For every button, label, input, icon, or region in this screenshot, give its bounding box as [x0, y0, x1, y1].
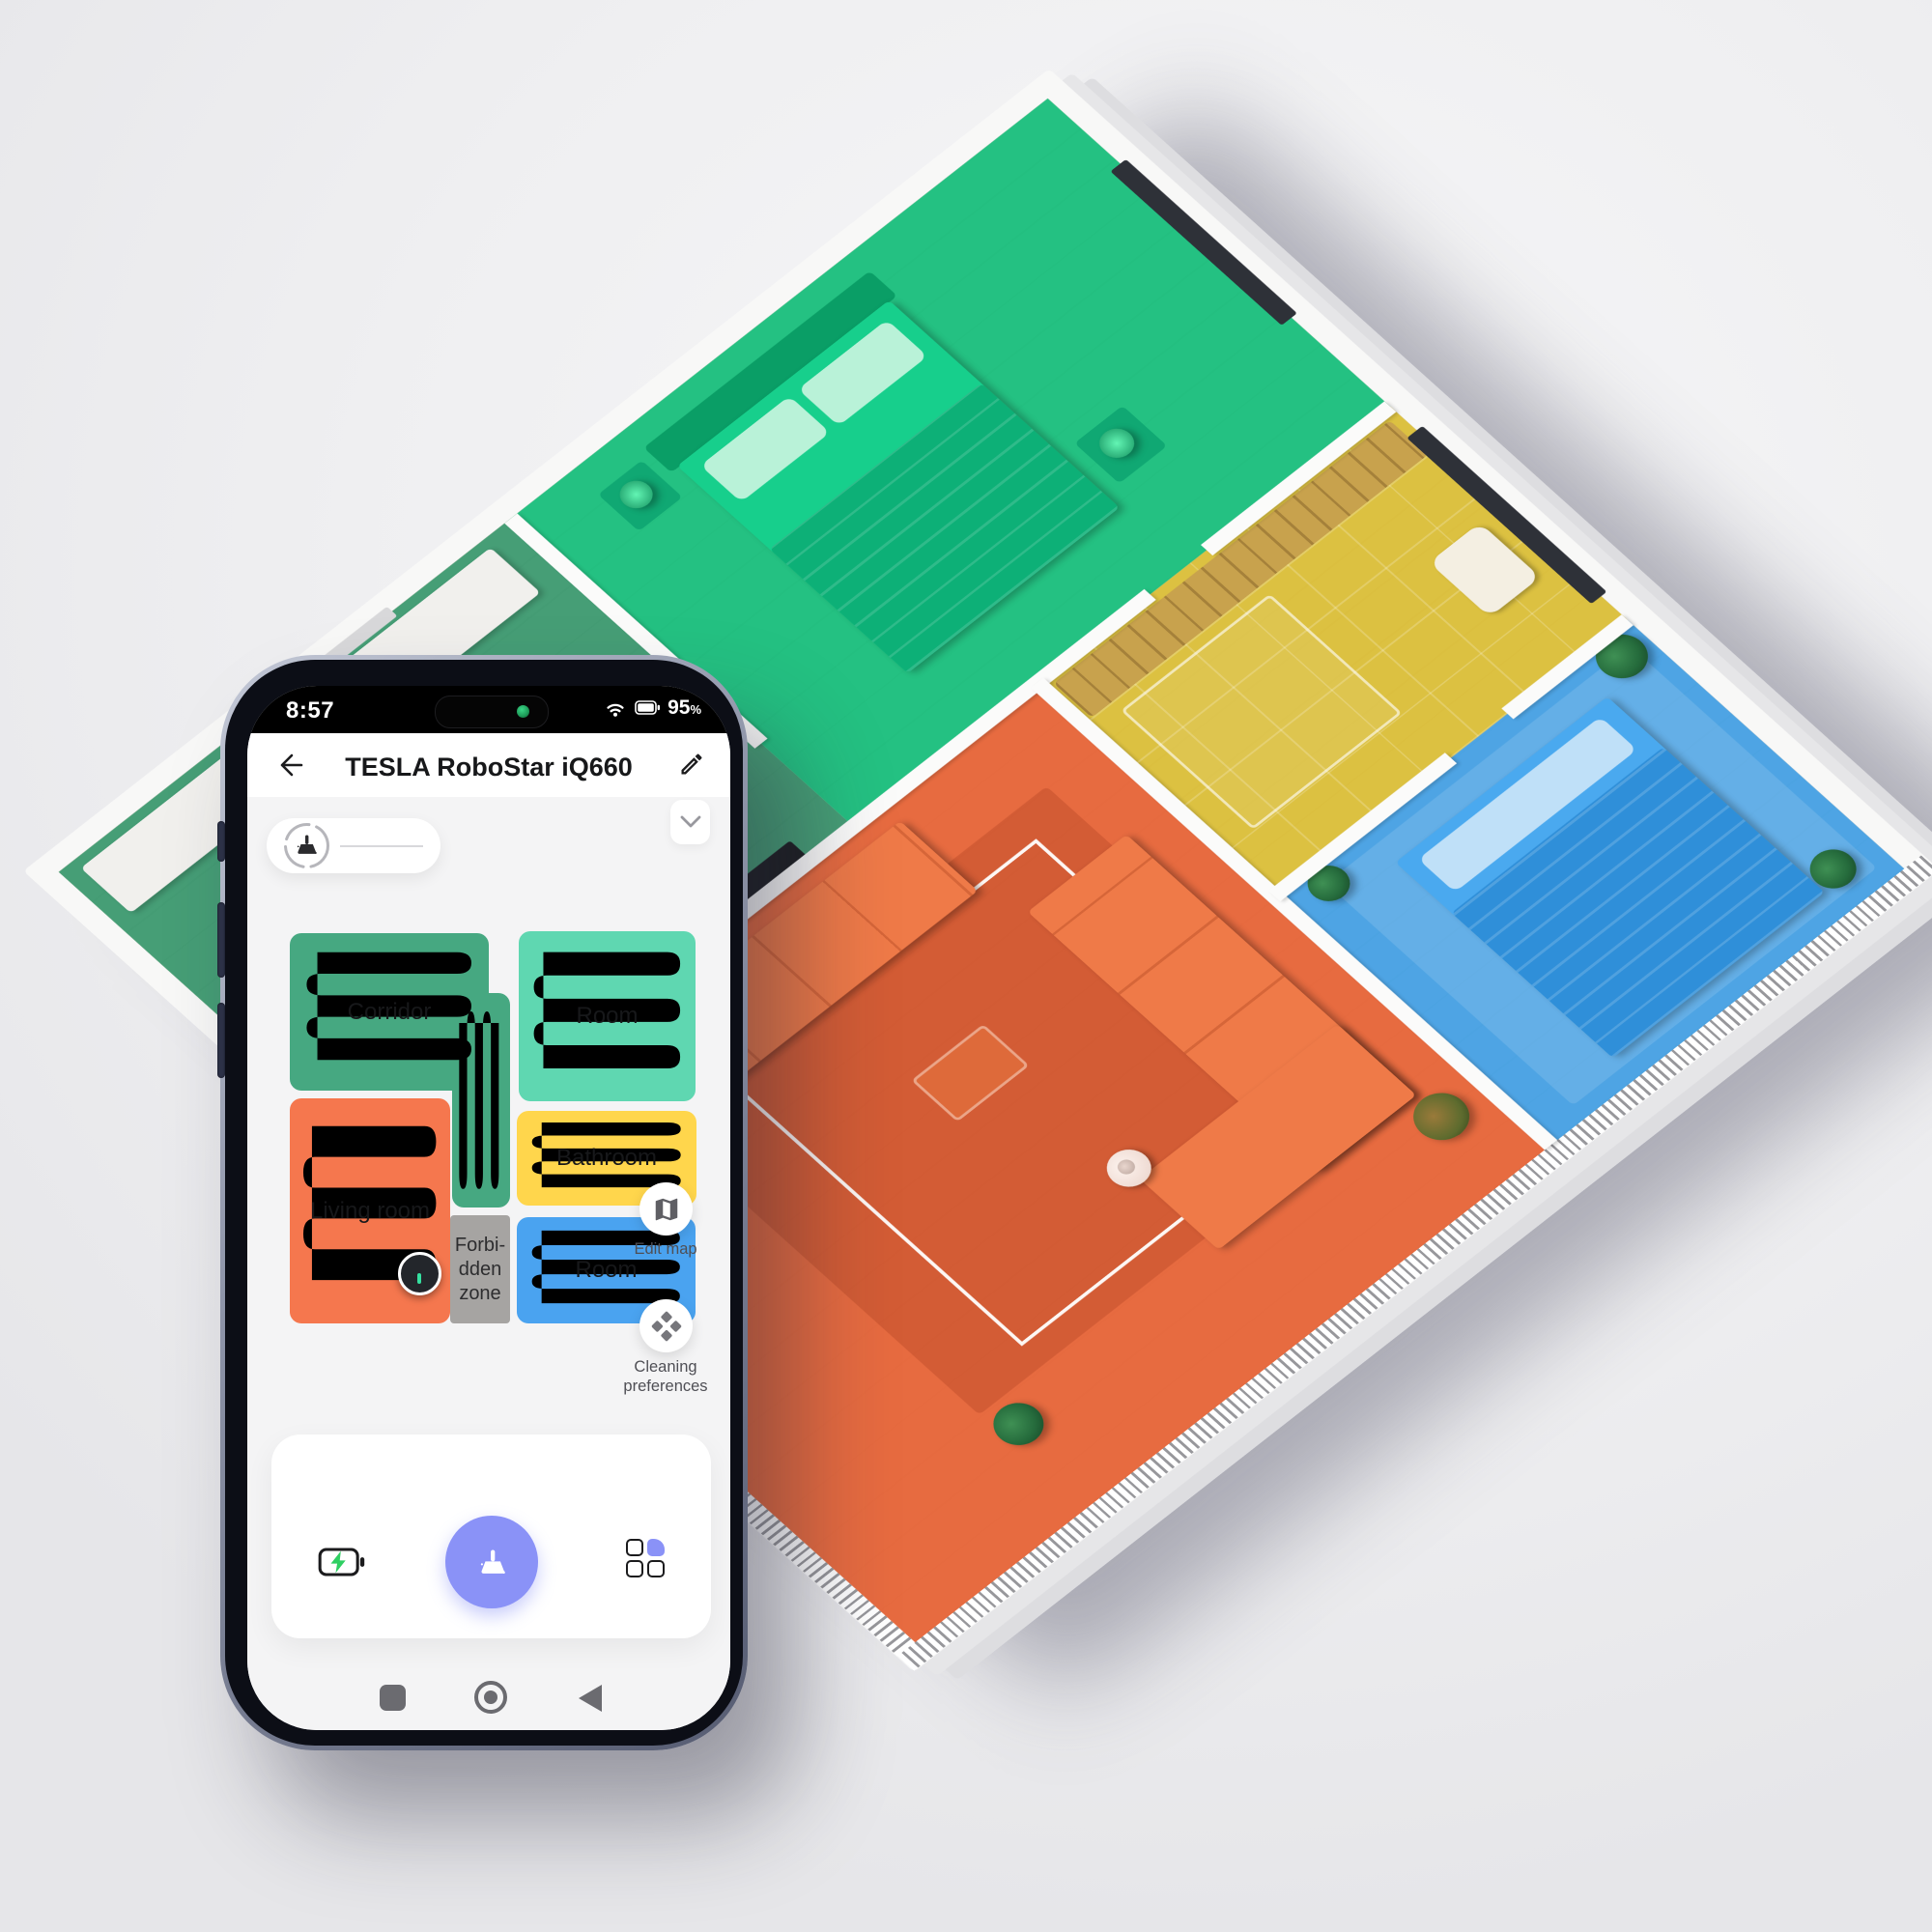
start-cleaning-button[interactable]	[445, 1516, 538, 1608]
status-bar: 8:57	[247, 686, 730, 733]
nav-recents-icon[interactable]	[380, 1685, 406, 1711]
forbidden-label-line: dden	[459, 1258, 502, 1282]
map-room-corridor-extension[interactable]	[452, 993, 510, 1207]
diamonds-icon	[651, 1311, 682, 1342]
volume-up-button[interactable]	[217, 902, 225, 978]
room-cleaning-button[interactable]	[624, 1537, 667, 1579]
app-screen: 8:57	[247, 686, 730, 1730]
recharge-button[interactable]	[318, 1543, 368, 1581]
camera-dot	[517, 705, 529, 718]
room-label: Bathroom	[556, 1145, 657, 1172]
action-button[interactable]	[217, 821, 225, 862]
grid-square	[647, 1560, 665, 1577]
forbidden-label-line: Forbi-	[455, 1234, 505, 1258]
app-header: TESLA RoboStar iQ660	[247, 733, 730, 797]
page-title: TESLA RoboStar iQ660	[247, 753, 730, 782]
map-forbidden-zone[interactable]: Forbi- dden zone	[450, 1215, 510, 1323]
room-label: Corridor	[348, 999, 432, 1026]
grid-square	[626, 1560, 643, 1577]
phone-body: 8:57	[225, 660, 743, 1746]
battery-charge-icon	[318, 1546, 368, 1578]
cleaning-preferences-label: Cleaning preferences	[607, 1357, 724, 1396]
battery-icon	[635, 699, 661, 717]
page-background: 8:57	[0, 0, 1932, 1932]
volume-down-button[interactable]	[217, 1003, 225, 1078]
status-time: 8:57	[286, 697, 334, 724]
camera-notch	[435, 696, 549, 728]
broom-icon	[473, 1548, 510, 1577]
forbidden-label-line: zone	[459, 1282, 500, 1306]
robot-marker-tick	[417, 1273, 421, 1284]
grid-square	[626, 1539, 643, 1556]
edit-map-label: Edit map	[612, 1239, 719, 1259]
map-icon	[652, 1195, 681, 1224]
nav-home-icon[interactable]	[474, 1681, 507, 1714]
room-label: Room	[575, 1257, 637, 1284]
app-content: Corridor Room Living room	[247, 797, 730, 1730]
wifi-icon	[603, 697, 628, 719]
nav-back-icon[interactable]	[579, 1685, 602, 1712]
action-card	[271, 1435, 711, 1638]
robot-app-phone: 8:57	[220, 655, 748, 1750]
room-label: Living room	[310, 1198, 430, 1225]
cleaning-preferences-button[interactable]	[639, 1299, 693, 1352]
rooms-grid-icon	[626, 1539, 665, 1577]
room-label: Room	[576, 1003, 638, 1030]
map-room-top[interactable]: Room	[519, 931, 696, 1101]
edit-map-button[interactable]	[639, 1182, 693, 1236]
battery-percent: 95%	[668, 696, 701, 720]
robot-position-marker	[398, 1252, 441, 1295]
android-nav-bar	[247, 1661, 730, 1730]
edit-pencil-icon[interactable]	[678, 751, 705, 778]
grid-square-accent	[647, 1539, 665, 1556]
